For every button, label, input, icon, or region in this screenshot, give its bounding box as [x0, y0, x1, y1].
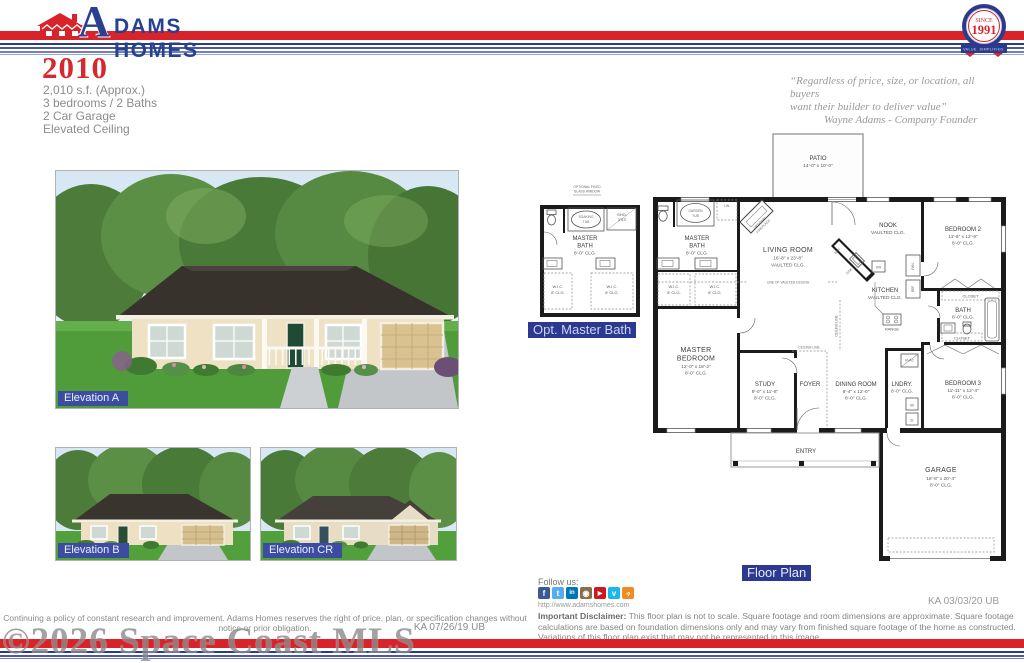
badge-ribbon: VALUE. SIMPLIFIED.	[963, 48, 1005, 52]
elevation-cr-label: Elevation CR	[263, 543, 342, 558]
garden-tub-label-1: GARDEN	[688, 209, 703, 213]
dishwasher-label: DW	[876, 266, 882, 270]
shower-label-2: 3'X3'	[618, 217, 627, 222]
laundry-room: LNDRY. 8'-0" CLG. HVAC W D	[891, 354, 918, 425]
room-bed2-dims: 11'-6" x 12'-9"	[948, 234, 977, 240]
room-master-dims: 12'-0" x 18'-2"	[681, 364, 711, 370]
dryer-label: D	[911, 418, 914, 423]
founder-quote: “Regardless of price, size, or location,…	[790, 75, 1000, 127]
entry-porch: ENTRY	[731, 433, 879, 467]
floor-plan-stamp: KA 03/03/20 UB	[928, 596, 999, 607]
master-toilet-icon	[658, 206, 668, 221]
elevation-cr-image: Elevation CR	[260, 447, 457, 561]
opt-window-note-1: OPTIONAL FIXED	[573, 185, 601, 189]
room-bed3-clg: 8'-0" CLG.	[952, 395, 974, 401]
room-garage-dims: 18'-8" x 20'-4"	[926, 476, 956, 482]
hvac-label: HVAC	[905, 359, 915, 363]
elevation-a-scene	[56, 171, 458, 408]
room-living-clg: VAULTED CLG.	[771, 263, 805, 269]
room-dining-dims: 9'-4" x 12'-0"	[843, 389, 870, 395]
kitchen-sink-label: SINK	[845, 267, 854, 276]
fridge-label: REF	[911, 286, 915, 293]
soaking-tub-label-2: TUB	[583, 220, 590, 224]
opt-mbath-clg: 8'-0" CLG.	[574, 251, 596, 257]
social-icons: f t in ◉ ▶ v »	[538, 587, 634, 599]
optional-fireplace-icon: OPTIONAL FIREPLACE	[740, 200, 773, 234]
opt-wic-left-clg: 8' CLG.	[551, 290, 564, 295]
youtube-icon[interactable]: ▶	[594, 587, 606, 599]
since-1991-badge: SINCE 1991 VALUE. SIMPLIFIED.	[956, 2, 1012, 58]
room-foyer-name: FOYER	[800, 382, 821, 388]
room-kitchen-clg: VAULTED CLG.	[868, 295, 902, 301]
washer-label: W	[910, 403, 914, 408]
opt-mbath-name-1: MASTER	[572, 236, 598, 242]
nook-kitchen: NOOK VAULTED CLG. BAR SINK DW PAN. REF K…	[831, 223, 920, 332]
pantry-label: PAN.	[911, 262, 915, 270]
room-master-clg: 8'-0" CLG.	[685, 371, 707, 377]
room-bed2-clg: 8'-0" CLG.	[952, 241, 974, 247]
ceiling-line-label-h: CEILING LINE	[798, 346, 820, 350]
wic-right-label: W.I.C.	[710, 284, 721, 289]
living-room: LIVING ROOM 16'-8" x 23'-8" VAULTED CLG.…	[658, 247, 837, 285]
spec-lines: 2,010 s.f. (Approx.) 3 bedrooms / 2 Bath…	[43, 84, 157, 136]
quote-line-2: want their builder to deliver value”	[790, 101, 1000, 114]
ceiling-line-label-v: CEILING LINE	[835, 314, 839, 336]
opt-window-note-2: GLASS WINDOW	[574, 190, 601, 194]
room-mbath-clg: 8'-0" CLG.	[686, 251, 708, 257]
room-patio-name: PATIO	[809, 156, 826, 162]
model-number: 2010	[42, 50, 108, 86]
brand-initial: A	[78, 0, 110, 44]
wic-left-label: W.I.C.	[669, 284, 680, 289]
room-bed2-name: BEDROOM 2	[945, 227, 982, 233]
room-lndry-clg: 8'-0" CLG.	[891, 389, 913, 395]
opt-wic-right-label: W.I.C.	[607, 284, 618, 289]
elevation-a-image: Elevation A	[55, 170, 459, 409]
badge-year: 1991	[972, 23, 997, 37]
room-study-name: STUDY	[755, 382, 775, 388]
line-of-vaulted-ceiling-label: LINE OF VAULTED CEILING	[767, 281, 810, 285]
room-bed3-dims: 11'-11" x 12'-4"	[947, 388, 979, 394]
patio-area: PATIO 14'-0" x 10'-0"	[773, 134, 863, 198]
room-study-clg: 8'-0" CLG.	[754, 396, 776, 402]
room-nook-clg: VAULTED CLG.	[871, 230, 905, 236]
soaking-tub-icon: SOAKING TUB	[568, 208, 604, 231]
room-garage-name: GARAGE	[925, 467, 957, 474]
room-mbath-name-1: MASTER	[684, 236, 710, 242]
important-disclaimer: Important Disclaimer: This floor plan is…	[538, 611, 1016, 643]
room-bath-clg: 8'-0" CLG.	[952, 315, 974, 321]
spec-ceiling: Elevated Ceiling	[43, 123, 157, 136]
quote-line-1: “Regardless of price, size, or location,…	[790, 75, 1000, 101]
opt-wic-left-label: W.I.C.	[553, 284, 564, 289]
room-mbath-name-2: BATH	[689, 244, 705, 250]
brand-logo: A DAMS HOMES	[34, 2, 254, 46]
room-living-name: LIVING ROOM	[763, 247, 813, 254]
floor-plan-tag: Floor Plan	[742, 565, 811, 581]
opt-master-bath-plan: OPTIONAL FIXED GLASS WINDOW SOAKING TUB	[540, 185, 640, 317]
room-master-name-1: MASTER	[681, 347, 712, 354]
linkedin-icon[interactable]: in	[566, 587, 578, 599]
garden-tub-icon: GARDEN TUB	[677, 200, 714, 226]
room-bath-name: BATH	[955, 308, 971, 314]
room-study-dims: 9'-0" x 11'-8"	[752, 389, 779, 395]
rss-icon[interactable]: »	[622, 587, 634, 599]
range-icon: RANGE	[883, 314, 901, 332]
study-foyer-dining: STUDY 9'-0" x 11'-8" 8'-0" CLG. FOYER CE…	[752, 300, 877, 428]
room-kitchen-name: KITCHEN	[872, 288, 898, 294]
mls-watermark: ©2026 Space Coast MLS	[2, 620, 416, 663]
opt-wic-right-clg: 8' CLG.	[605, 290, 618, 295]
bedroom3: BEDROOM 3 11'-11" x 12'-4" 8'-0" CLG.	[945, 381, 982, 401]
room-bed3-name: BEDROOM 3	[945, 381, 982, 387]
room-living-dims: 16'-8" x 23'-8"	[773, 256, 803, 262]
room-nook-name: NOOK	[879, 223, 897, 229]
opt-mbath-name-2: BATH	[577, 244, 593, 250]
room-garage-clg: 8'-0" CLG.	[930, 483, 952, 489]
elevation-b-label: Elevation B	[58, 543, 129, 558]
room-lndry-name: LNDRY.	[891, 382, 912, 388]
instagram-icon[interactable]: ◉	[580, 587, 592, 599]
garage: GARAGE 18'-8" x 20'-4" 8'-0" CLG.	[888, 467, 994, 561]
opt-master-bath-tag: Opt. Master Bath	[528, 322, 636, 338]
twitter-icon[interactable]: t	[552, 587, 564, 599]
soaking-tub-label-1: SOAKING	[578, 215, 593, 219]
room-master-name-2: BEDROOM	[677, 356, 715, 363]
bed2-closet-label: CLOSET	[962, 294, 979, 299]
elevation-b-image: Elevation B	[55, 447, 251, 561]
toilet-icon	[547, 210, 556, 225]
shower-icon: SHO. 3'X3'	[607, 208, 636, 230]
quote-attribution: Wayne Adams - Company Founder	[790, 114, 1000, 127]
flyer-page: A DAMS HOMES SINCE 1991 VALUE. SIMPLIFIE…	[0, 0, 1024, 663]
wic-left-clg: 8' CLG.	[667, 290, 680, 295]
range-label: RANGE	[885, 327, 900, 332]
bed3-closet-label: CLOSET	[954, 336, 971, 341]
room-patio-dims: 14'-0" x 10'-0"	[803, 163, 833, 169]
elevation-a-label: Elevation A	[58, 391, 128, 406]
room-dining-clg: 8'-0" CLG.	[845, 396, 867, 402]
disclaimer-label: Important Disclaimer:	[538, 611, 626, 621]
brand-name: DAMS HOMES	[114, 15, 254, 63]
master-suite: GARDEN TUB LIN. MASTER BATH 8'-0" CLG. W…	[657, 197, 737, 377]
entry-label: ENTRY	[796, 449, 816, 455]
linen-closet-label: LIN.	[724, 204, 730, 208]
facebook-icon[interactable]: f	[538, 587, 550, 599]
wic-right-clg: 8' CLG.	[708, 290, 721, 295]
floor-plan-drawing: OPTIONAL FIXED GLASS WINDOW SOAKING TUB	[535, 130, 1015, 575]
website-link[interactable]: http://www.adamshomes.com	[538, 602, 629, 609]
vimeo-icon[interactable]: v	[608, 587, 620, 599]
room-dining-name: DINING ROOM	[835, 382, 876, 388]
garden-tub-label-2: TUB	[692, 214, 699, 218]
follow-us-label: Follow us:	[538, 577, 579, 587]
